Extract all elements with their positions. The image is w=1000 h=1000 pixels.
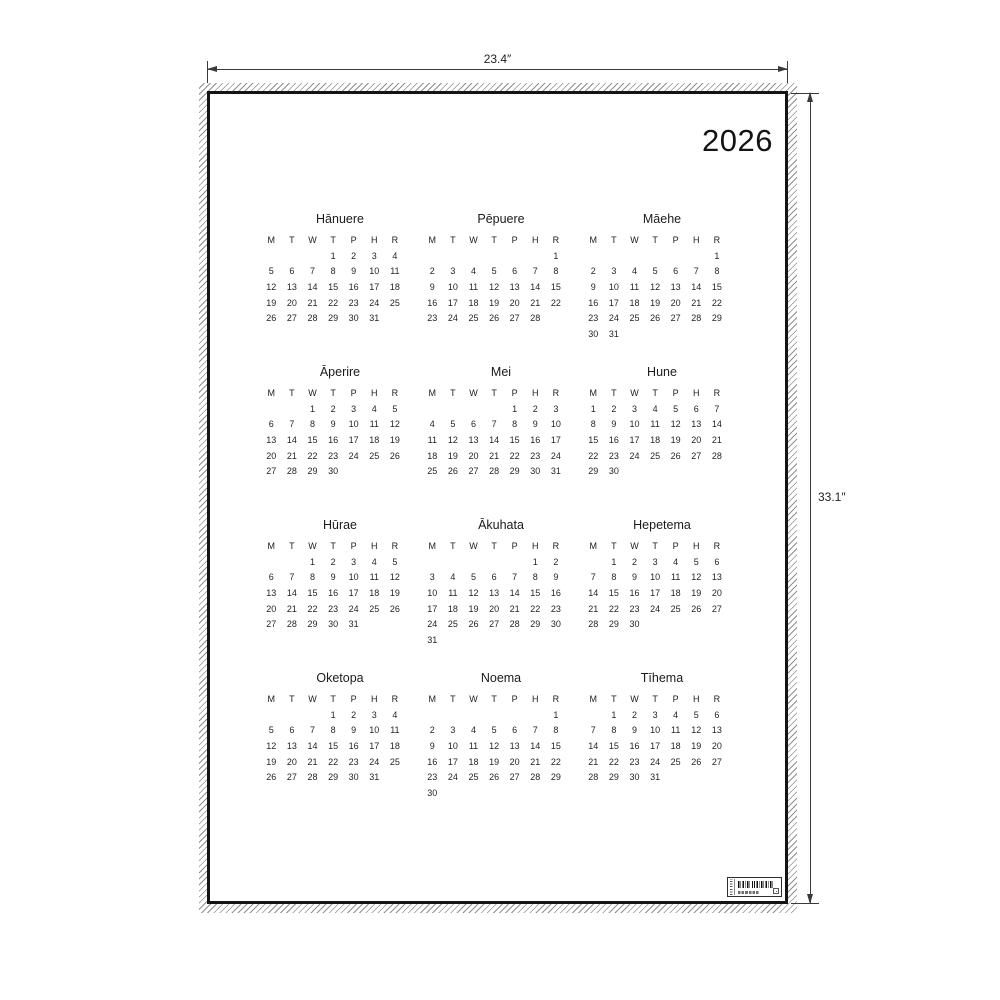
- day-cell: 30: [629, 619, 639, 629]
- day-cell: 10: [650, 572, 660, 582]
- day-cell: 12: [448, 435, 458, 445]
- day-cell: 3: [632, 404, 637, 414]
- day-cell: 19: [266, 757, 276, 767]
- day-cell: 11: [469, 741, 478, 751]
- day-cell: 22: [510, 451, 520, 461]
- day-cell: 6: [492, 572, 497, 582]
- day-cell: 3: [611, 266, 616, 276]
- day-cell: 3: [450, 266, 455, 276]
- day-header-cell: M: [268, 694, 276, 704]
- day-cell: 22: [551, 757, 561, 767]
- day-cell: 22: [530, 604, 540, 614]
- day-cell: 30: [609, 466, 619, 476]
- day-cell: 19: [489, 298, 499, 308]
- day-cell: 20: [510, 757, 520, 767]
- day-cell: 1: [611, 710, 616, 720]
- day-cell: 8: [611, 725, 616, 735]
- day-cell: 10: [629, 419, 639, 429]
- day-cell: 21: [307, 757, 317, 767]
- day-cell: 11: [650, 419, 659, 429]
- day-cell: 5: [492, 725, 497, 735]
- day-cell: 29: [328, 313, 338, 323]
- day-cell: 4: [392, 710, 397, 720]
- day-cell: 13: [671, 282, 681, 292]
- day-cell: 4: [471, 266, 476, 276]
- day-header-cell: T: [652, 235, 658, 245]
- day-cell: 5: [492, 266, 497, 276]
- day-cell: 27: [510, 772, 520, 782]
- day-cell: 4: [450, 572, 455, 582]
- day-cell: 13: [712, 725, 722, 735]
- day-header-cell: W: [630, 541, 639, 551]
- day-cell: 20: [712, 741, 722, 751]
- day-cell: 9: [611, 419, 616, 429]
- day-cell: 16: [328, 435, 338, 445]
- day-cell: 23: [328, 604, 338, 614]
- day-cell: 14: [287, 435, 297, 445]
- day-cell: 8: [714, 266, 719, 276]
- day-cell: 1: [310, 404, 315, 414]
- day-cell: 8: [331, 266, 336, 276]
- day-header-cell: W: [630, 388, 639, 398]
- day-cell: 20: [691, 435, 701, 445]
- day-cell: 3: [450, 725, 455, 735]
- day-cell: 12: [489, 741, 499, 751]
- day-cell: 29: [328, 772, 338, 782]
- day-cell: 2: [611, 404, 616, 414]
- day-cell: 28: [307, 313, 317, 323]
- day-cell: 1: [611, 557, 616, 567]
- day-header-cell: T: [330, 541, 336, 551]
- day-header-cell: P: [512, 694, 518, 704]
- day-header-cell: H: [532, 235, 539, 245]
- day-cell: 13: [266, 588, 276, 598]
- month-block: HepetemaMTWTPHR1234567891011121314151617…: [583, 518, 727, 671]
- day-header-cell: P: [512, 235, 518, 245]
- day-cell: 3: [553, 404, 558, 414]
- day-cell: 11: [390, 725, 399, 735]
- day-cell: 25: [468, 313, 478, 323]
- lot-microtext: [738, 891, 759, 894]
- day-cell: 22: [588, 451, 598, 461]
- day-cell: 17: [448, 757, 458, 767]
- day-cell: 18: [671, 741, 681, 751]
- day-cell: 21: [530, 298, 540, 308]
- day-header-cell: T: [450, 694, 456, 704]
- day-cell: 6: [714, 710, 719, 720]
- day-cell: 5: [392, 404, 397, 414]
- day-cell: 2: [331, 557, 336, 567]
- day-cell: 7: [714, 404, 719, 414]
- day-cell: 3: [372, 710, 377, 720]
- day-cell: 26: [468, 619, 478, 629]
- day-cell: 30: [629, 772, 639, 782]
- day-cell: 13: [489, 588, 499, 598]
- day-header-cell: P: [351, 541, 357, 551]
- day-cell: 30: [349, 313, 359, 323]
- day-cell: 26: [671, 451, 681, 461]
- day-cell: 30: [328, 466, 338, 476]
- day-cell: 5: [673, 404, 678, 414]
- day-cell: 14: [307, 282, 317, 292]
- day-cell: 16: [427, 757, 437, 767]
- day-cell: 24: [349, 604, 359, 614]
- day-cell: 7: [591, 572, 596, 582]
- day-cell: 17: [609, 298, 619, 308]
- day-grid: MTWTPHR123456789101112131415161718192021…: [583, 385, 727, 479]
- day-cell: 23: [427, 772, 437, 782]
- day-grid: MTWTPHR123456789101112131415161718192021…: [422, 385, 566, 479]
- day-cell: 27: [287, 772, 297, 782]
- day-header-cell: W: [469, 388, 478, 398]
- day-header-cell: M: [590, 235, 598, 245]
- day-header-cell: R: [553, 388, 560, 398]
- day-header-cell: T: [289, 541, 295, 551]
- day-cell: 11: [630, 282, 639, 292]
- day-cell: 17: [650, 588, 660, 598]
- day-cell: 15: [307, 588, 317, 598]
- day-cell: 7: [310, 725, 315, 735]
- day-cell: 14: [530, 282, 540, 292]
- day-cell: 19: [650, 298, 660, 308]
- day-cell: 23: [551, 604, 561, 614]
- day-header-cell: R: [553, 694, 560, 704]
- arrow-left-icon: [207, 66, 217, 72]
- day-cell: 30: [427, 788, 437, 798]
- day-cell: 10: [349, 572, 359, 582]
- day-cell: 22: [328, 757, 338, 767]
- day-cell: 28: [530, 772, 540, 782]
- day-cell: 21: [691, 298, 701, 308]
- day-header-cell: T: [289, 235, 295, 245]
- day-cell: 25: [390, 757, 400, 767]
- day-cell: 5: [392, 557, 397, 567]
- day-cell: 11: [671, 572, 680, 582]
- month-title: Māehe: [590, 212, 734, 226]
- day-header-cell: T: [652, 694, 658, 704]
- day-cell: 18: [448, 604, 458, 614]
- day-cell: 27: [287, 313, 297, 323]
- day-header-cell: P: [673, 388, 679, 398]
- day-cell: 12: [390, 419, 400, 429]
- day-cell: 10: [369, 266, 379, 276]
- day-cell: 10: [650, 725, 660, 735]
- day-cell: 3: [653, 557, 658, 567]
- day-header-cell: P: [673, 541, 679, 551]
- day-cell: 26: [266, 772, 276, 782]
- day-cell: 24: [650, 757, 660, 767]
- day-header-cell: R: [392, 388, 399, 398]
- day-header-cell: P: [673, 694, 679, 704]
- day-cell: 20: [266, 451, 276, 461]
- day-cell: 25: [427, 466, 437, 476]
- day-cell: 6: [289, 725, 294, 735]
- day-cell: 30: [328, 619, 338, 629]
- day-cell: 3: [351, 557, 356, 567]
- day-cell: 16: [349, 282, 359, 292]
- day-header-cell: W: [308, 235, 317, 245]
- months-grid: HānuereMTWTPHR12345678910111213141516171…: [261, 212, 727, 824]
- day-cell: 24: [629, 451, 639, 461]
- day-cell: 26: [390, 451, 400, 461]
- day-cell: 3: [372, 251, 377, 261]
- day-cell: 17: [369, 282, 379, 292]
- day-cell: 8: [331, 725, 336, 735]
- day-cell: 24: [551, 451, 561, 461]
- day-header-cell: T: [611, 388, 617, 398]
- day-header-cell: R: [553, 235, 560, 245]
- day-cell: 29: [307, 466, 317, 476]
- day-cell: 6: [512, 725, 517, 735]
- day-cell: 19: [468, 604, 478, 614]
- day-cell: 29: [551, 772, 561, 782]
- month-title: Noema: [429, 671, 573, 685]
- day-cell: 18: [369, 435, 379, 445]
- day-cell: 28: [712, 451, 722, 461]
- day-header-cell: R: [392, 694, 399, 704]
- width-dimension-line: [208, 69, 787, 70]
- day-cell: 6: [471, 419, 476, 429]
- day-cell: 16: [629, 741, 639, 751]
- day-cell: 14: [287, 588, 297, 598]
- day-cell: 21: [510, 604, 520, 614]
- day-cell: 18: [390, 282, 400, 292]
- day-cell: 9: [430, 282, 435, 292]
- day-cell: 7: [492, 419, 497, 429]
- day-cell: 1: [714, 251, 719, 261]
- day-grid: MTWTPHR123456789101112131415161718192021…: [583, 691, 727, 785]
- day-cell: 1: [310, 557, 315, 567]
- day-cell: 2: [591, 266, 596, 276]
- day-header-cell: H: [371, 235, 378, 245]
- day-header-cell: P: [673, 235, 679, 245]
- day-cell: 14: [489, 435, 499, 445]
- day-cell: 26: [448, 466, 458, 476]
- day-cell: 14: [588, 741, 598, 751]
- day-cell: 14: [691, 282, 701, 292]
- day-cell: 12: [650, 282, 660, 292]
- day-cell: 17: [551, 435, 561, 445]
- day-cell: 14: [712, 419, 722, 429]
- day-header-cell: M: [268, 541, 276, 551]
- day-cell: 8: [591, 419, 596, 429]
- day-cell: 12: [468, 588, 478, 598]
- day-cell: 3: [351, 404, 356, 414]
- day-cell: 26: [390, 604, 400, 614]
- day-cell: 12: [489, 282, 499, 292]
- day-cell: 27: [266, 619, 276, 629]
- day-cell: 12: [266, 741, 276, 751]
- day-cell: 8: [310, 419, 315, 429]
- day-header-cell: M: [590, 388, 598, 398]
- day-header-cell: H: [532, 541, 539, 551]
- day-cell: 21: [287, 451, 297, 461]
- day-header-cell: T: [491, 541, 497, 551]
- day-cell: 23: [427, 313, 437, 323]
- day-cell: 11: [469, 282, 478, 292]
- day-cell: 18: [369, 588, 379, 598]
- day-cell: 7: [512, 572, 517, 582]
- day-cell: 17: [427, 604, 437, 614]
- day-header-cell: H: [532, 694, 539, 704]
- day-cell: 15: [588, 435, 598, 445]
- day-header-cell: R: [553, 541, 560, 551]
- day-cell: 24: [349, 451, 359, 461]
- day-cell: 12: [671, 419, 681, 429]
- month-block: ĀperireMTWTPHR12345678910111213141516171…: [261, 365, 405, 518]
- day-cell: 23: [629, 604, 639, 614]
- day-cell: 20: [266, 604, 276, 614]
- day-cell: 19: [266, 298, 276, 308]
- day-cell: 6: [714, 557, 719, 567]
- day-cell: 30: [530, 466, 540, 476]
- day-cell: 27: [266, 466, 276, 476]
- extension-line: [791, 93, 819, 94]
- day-cell: 9: [351, 266, 356, 276]
- calendar-poster: 2026 HānuereMTWTPHR123456789101112131415…: [207, 91, 788, 904]
- day-cell: 11: [370, 419, 379, 429]
- day-cell: 11: [390, 266, 399, 276]
- day-cell: 25: [650, 451, 660, 461]
- day-cell: 7: [533, 266, 538, 276]
- day-header-cell: T: [289, 694, 295, 704]
- day-header-cell: R: [714, 388, 721, 398]
- day-grid: MTWTPHR123456789101112131415161718192021…: [422, 691, 566, 801]
- day-cell: 28: [287, 466, 297, 476]
- day-cell: 19: [390, 435, 400, 445]
- day-cell: 30: [588, 329, 598, 339]
- day-header-cell: R: [714, 694, 721, 704]
- month-block: HūraeMTWTPHR1234567891011121314151617181…: [261, 518, 405, 671]
- month-title: Tīhema: [590, 671, 734, 685]
- day-cell: 31: [369, 313, 379, 323]
- day-header-cell: M: [429, 235, 437, 245]
- day-cell: 31: [427, 635, 437, 645]
- day-cell: 16: [328, 588, 338, 598]
- day-cell: 23: [349, 298, 359, 308]
- day-cell: 17: [369, 741, 379, 751]
- day-cell: 2: [331, 404, 336, 414]
- day-cell: 13: [468, 435, 478, 445]
- day-cell: 12: [390, 572, 400, 582]
- day-cell: 15: [609, 741, 619, 751]
- day-cell: 10: [427, 588, 437, 598]
- day-header-cell: H: [371, 541, 378, 551]
- day-cell: 16: [530, 435, 540, 445]
- day-cell: 7: [533, 725, 538, 735]
- day-cell: 24: [369, 298, 379, 308]
- day-cell: 15: [328, 741, 338, 751]
- day-cell: 30: [551, 619, 561, 629]
- day-cell: 8: [611, 572, 616, 582]
- day-header-cell: H: [693, 694, 700, 704]
- day-cell: 14: [530, 741, 540, 751]
- day-cell: 2: [430, 266, 435, 276]
- day-cell: 2: [430, 725, 435, 735]
- day-cell: 15: [551, 741, 561, 751]
- day-cell: 9: [430, 741, 435, 751]
- day-header-cell: T: [611, 694, 617, 704]
- day-cell: 3: [653, 710, 658, 720]
- day-cell: 2: [533, 404, 538, 414]
- day-cell: 23: [530, 451, 540, 461]
- day-cell: 31: [349, 619, 359, 629]
- day-cell: 11: [448, 588, 457, 598]
- month-title: Hūrae: [268, 518, 412, 532]
- day-cell: 16: [588, 298, 598, 308]
- day-cell: 29: [530, 619, 540, 629]
- day-grid: MTWTPHR123456789101112131415161718192021…: [583, 232, 727, 342]
- day-cell: 15: [307, 435, 317, 445]
- day-cell: 22: [551, 298, 561, 308]
- cert-mark-icon: [773, 888, 779, 894]
- day-cell: 16: [349, 741, 359, 751]
- day-cell: 22: [609, 757, 619, 767]
- day-cell: 13: [266, 435, 276, 445]
- day-cell: 28: [588, 772, 598, 782]
- day-cell: 1: [553, 251, 558, 261]
- day-cell: 2: [351, 710, 356, 720]
- day-header-cell: M: [429, 388, 437, 398]
- day-cell: 15: [551, 282, 561, 292]
- day-header-cell: R: [392, 541, 399, 551]
- day-cell: 15: [328, 282, 338, 292]
- day-cell: 28: [530, 313, 540, 323]
- day-cell: 6: [512, 266, 517, 276]
- day-cell: 9: [331, 572, 336, 582]
- day-cell: 7: [289, 572, 294, 582]
- day-header-cell: T: [611, 235, 617, 245]
- day-header-cell: T: [450, 388, 456, 398]
- day-cell: 4: [632, 266, 637, 276]
- day-cell: 11: [671, 725, 680, 735]
- day-cell: 27: [510, 313, 520, 323]
- day-header-cell: T: [289, 388, 295, 398]
- day-cell: 28: [489, 466, 499, 476]
- day-cell: 6: [289, 266, 294, 276]
- day-header-cell: T: [652, 388, 658, 398]
- day-cell: 10: [448, 282, 458, 292]
- day-header-cell: W: [469, 235, 478, 245]
- day-cell: 16: [551, 588, 561, 598]
- day-cell: 13: [287, 282, 297, 292]
- day-cell: 10: [448, 741, 458, 751]
- day-cell: 21: [588, 757, 598, 767]
- day-header-cell: T: [611, 541, 617, 551]
- label-main-area: [735, 878, 781, 896]
- day-cell: 13: [287, 741, 297, 751]
- day-cell: 25: [629, 313, 639, 323]
- month-block: HānuereMTWTPHR12345678910111213141516171…: [261, 212, 405, 365]
- day-cell: 9: [553, 572, 558, 582]
- day-cell: 22: [307, 451, 317, 461]
- day-cell: 28: [287, 619, 297, 629]
- day-cell: 5: [269, 266, 274, 276]
- day-header-cell: M: [590, 541, 598, 551]
- day-cell: 8: [310, 572, 315, 582]
- month-title: Pēpuere: [429, 212, 573, 226]
- day-cell: 29: [307, 619, 317, 629]
- day-grid: MTWTPHR123456789101112131415161718192021…: [583, 538, 727, 632]
- day-cell: 7: [694, 266, 699, 276]
- day-cell: 19: [671, 435, 681, 445]
- day-cell: 4: [392, 251, 397, 261]
- day-cell: 5: [450, 419, 455, 429]
- day-cell: 28: [588, 619, 598, 629]
- day-cell: 10: [349, 419, 359, 429]
- day-cell: 10: [551, 419, 561, 429]
- day-cell: 6: [269, 572, 274, 582]
